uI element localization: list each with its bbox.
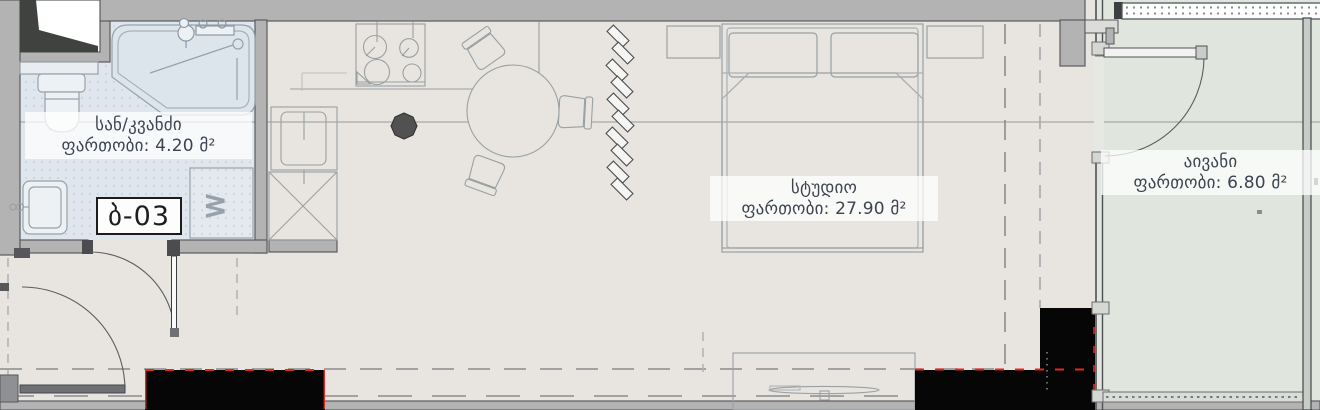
wall-bathroom-bottom-right: [172, 240, 267, 253]
column: [391, 113, 417, 139]
entry-hinge: [0, 283, 9, 291]
wall-bathroom-bottom-left: [20, 240, 88, 253]
balcony-doorway-threshold: [1094, 56, 1104, 152]
chair-icon: [558, 95, 593, 129]
bathroom-label: სან/კვანძი ფართობი: 4.20 მ²: [25, 112, 252, 159]
washer-letter: W: [202, 194, 230, 218]
balcony-door-leaf: [1104, 48, 1204, 57]
entry-jamb: [14, 248, 30, 258]
unit-number: ბ-03: [108, 201, 170, 232]
railing-band: [1122, 3, 1320, 19]
wall-bathroom-right: [255, 20, 267, 253]
wall-jamb-block: [1092, 302, 1109, 314]
studio-name: სტუდიო: [791, 178, 857, 198]
bathroom-name: სან/კვანძი: [95, 115, 182, 135]
redacted-block: [915, 370, 1040, 410]
window-stub: [1106, 28, 1114, 44]
redacted-block: [1040, 308, 1095, 410]
wall-kitchen-stub: [269, 240, 337, 252]
balcony-door-cap: [1196, 46, 1207, 59]
floor-plan-svg: W: [0, 0, 1320, 410]
wall-top: [0, 0, 1085, 21]
unit-number-box: ბ-03: [96, 197, 182, 235]
bathroom-shelf: [20, 62, 98, 74]
bath-door-jamb: [167, 240, 180, 256]
bath-door-leaf: [172, 256, 177, 330]
studio-label: სტუდიო ფართობი: 27.90 მ²: [710, 176, 938, 221]
bathroom-area: ფართობი: 4.20 მ²: [61, 136, 215, 156]
bath-door-cap: [170, 328, 179, 337]
entry-door-leaf: [20, 385, 125, 393]
balcony-area: ფართობი: 6.80 მ²: [1133, 173, 1287, 193]
dining-table-icon: [467, 65, 559, 157]
outlet-mark: [1257, 210, 1262, 214]
balcony-label: აივანი ფართობი: 6.80 მ²: [1101, 150, 1320, 195]
shaft-box: [20, 0, 100, 52]
studio-area: ფართობი: 27.90 მ²: [741, 199, 906, 219]
entry-jamb-bottom: [0, 375, 18, 402]
balcony-name: აივანი: [1184, 152, 1238, 172]
wall-left: [0, 0, 20, 255]
floor-plan: W: [0, 0, 1320, 410]
stove-icon: [356, 22, 425, 86]
balcony-floor: [1095, 0, 1320, 410]
redacted-block: [145, 370, 325, 410]
balcony-bottom-railing: [1103, 392, 1303, 402]
wall-top-right-block: [1060, 20, 1085, 66]
balcony-right-wall: [1303, 18, 1311, 410]
